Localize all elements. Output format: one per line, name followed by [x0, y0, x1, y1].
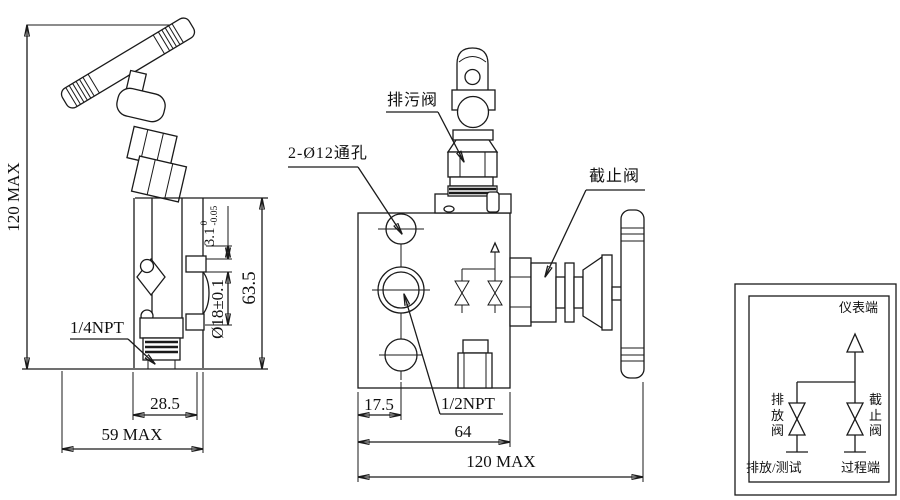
stop-valve-handle-bar [621, 210, 644, 378]
label-process-port: 1/2NPT [441, 395, 495, 413]
valve-stem [114, 70, 186, 201]
dim-bore-diameter: Ø18±0.1 [209, 279, 227, 339]
process-port-boss [458, 340, 492, 388]
stop-valve-assembly [510, 210, 644, 378]
label-stop-valve: 截止阀 [589, 169, 640, 186]
dim-slot-value: 3.1 [203, 228, 219, 247]
left-view [22, 15, 268, 453]
label-drain-valve: 排污阀 [387, 93, 438, 110]
dim-slot-tol-lower: -0.05 [211, 206, 221, 226]
label-through-holes: 2-Ø12通孔 [288, 146, 368, 163]
schematic-instrument-end-label: 仪表端 [839, 301, 878, 315]
dim-hole-offset: 17.5 [364, 396, 394, 414]
dim-overall-width-left: 59 MAX [102, 426, 163, 444]
schematic-stop-valve-label: 截止阀 [868, 392, 883, 439]
schematic-process-end-label: 过程端 [841, 461, 880, 475]
drain-valve-assembly [448, 48, 499, 212]
dim-hole-spacing: 28.5 [150, 395, 180, 413]
dim-overall-width-front: 120 MAX [466, 453, 535, 471]
schematic-drain-valve-label: 排放阀 [770, 392, 785, 439]
label-inlet-port: 1/4NPT [70, 319, 124, 337]
dim-body-width: 64 [455, 423, 472, 441]
technical-drawing-page: 120 MAX 3.10-0.05 Ø18±0.1 63.5 1/4NPT 28… [0, 0, 900, 500]
schematic-frame [749, 296, 889, 482]
dim-slot-tolerance: 3.10-0.05 [201, 206, 221, 247]
dim-overall-height-left: 120 MAX [5, 162, 23, 231]
schematic-drain-test-label: 排放/测试 [746, 461, 802, 475]
dim-body-height: 63.5 [240, 271, 260, 304]
front-view [288, 48, 645, 482]
npt-collar [140, 318, 183, 338]
